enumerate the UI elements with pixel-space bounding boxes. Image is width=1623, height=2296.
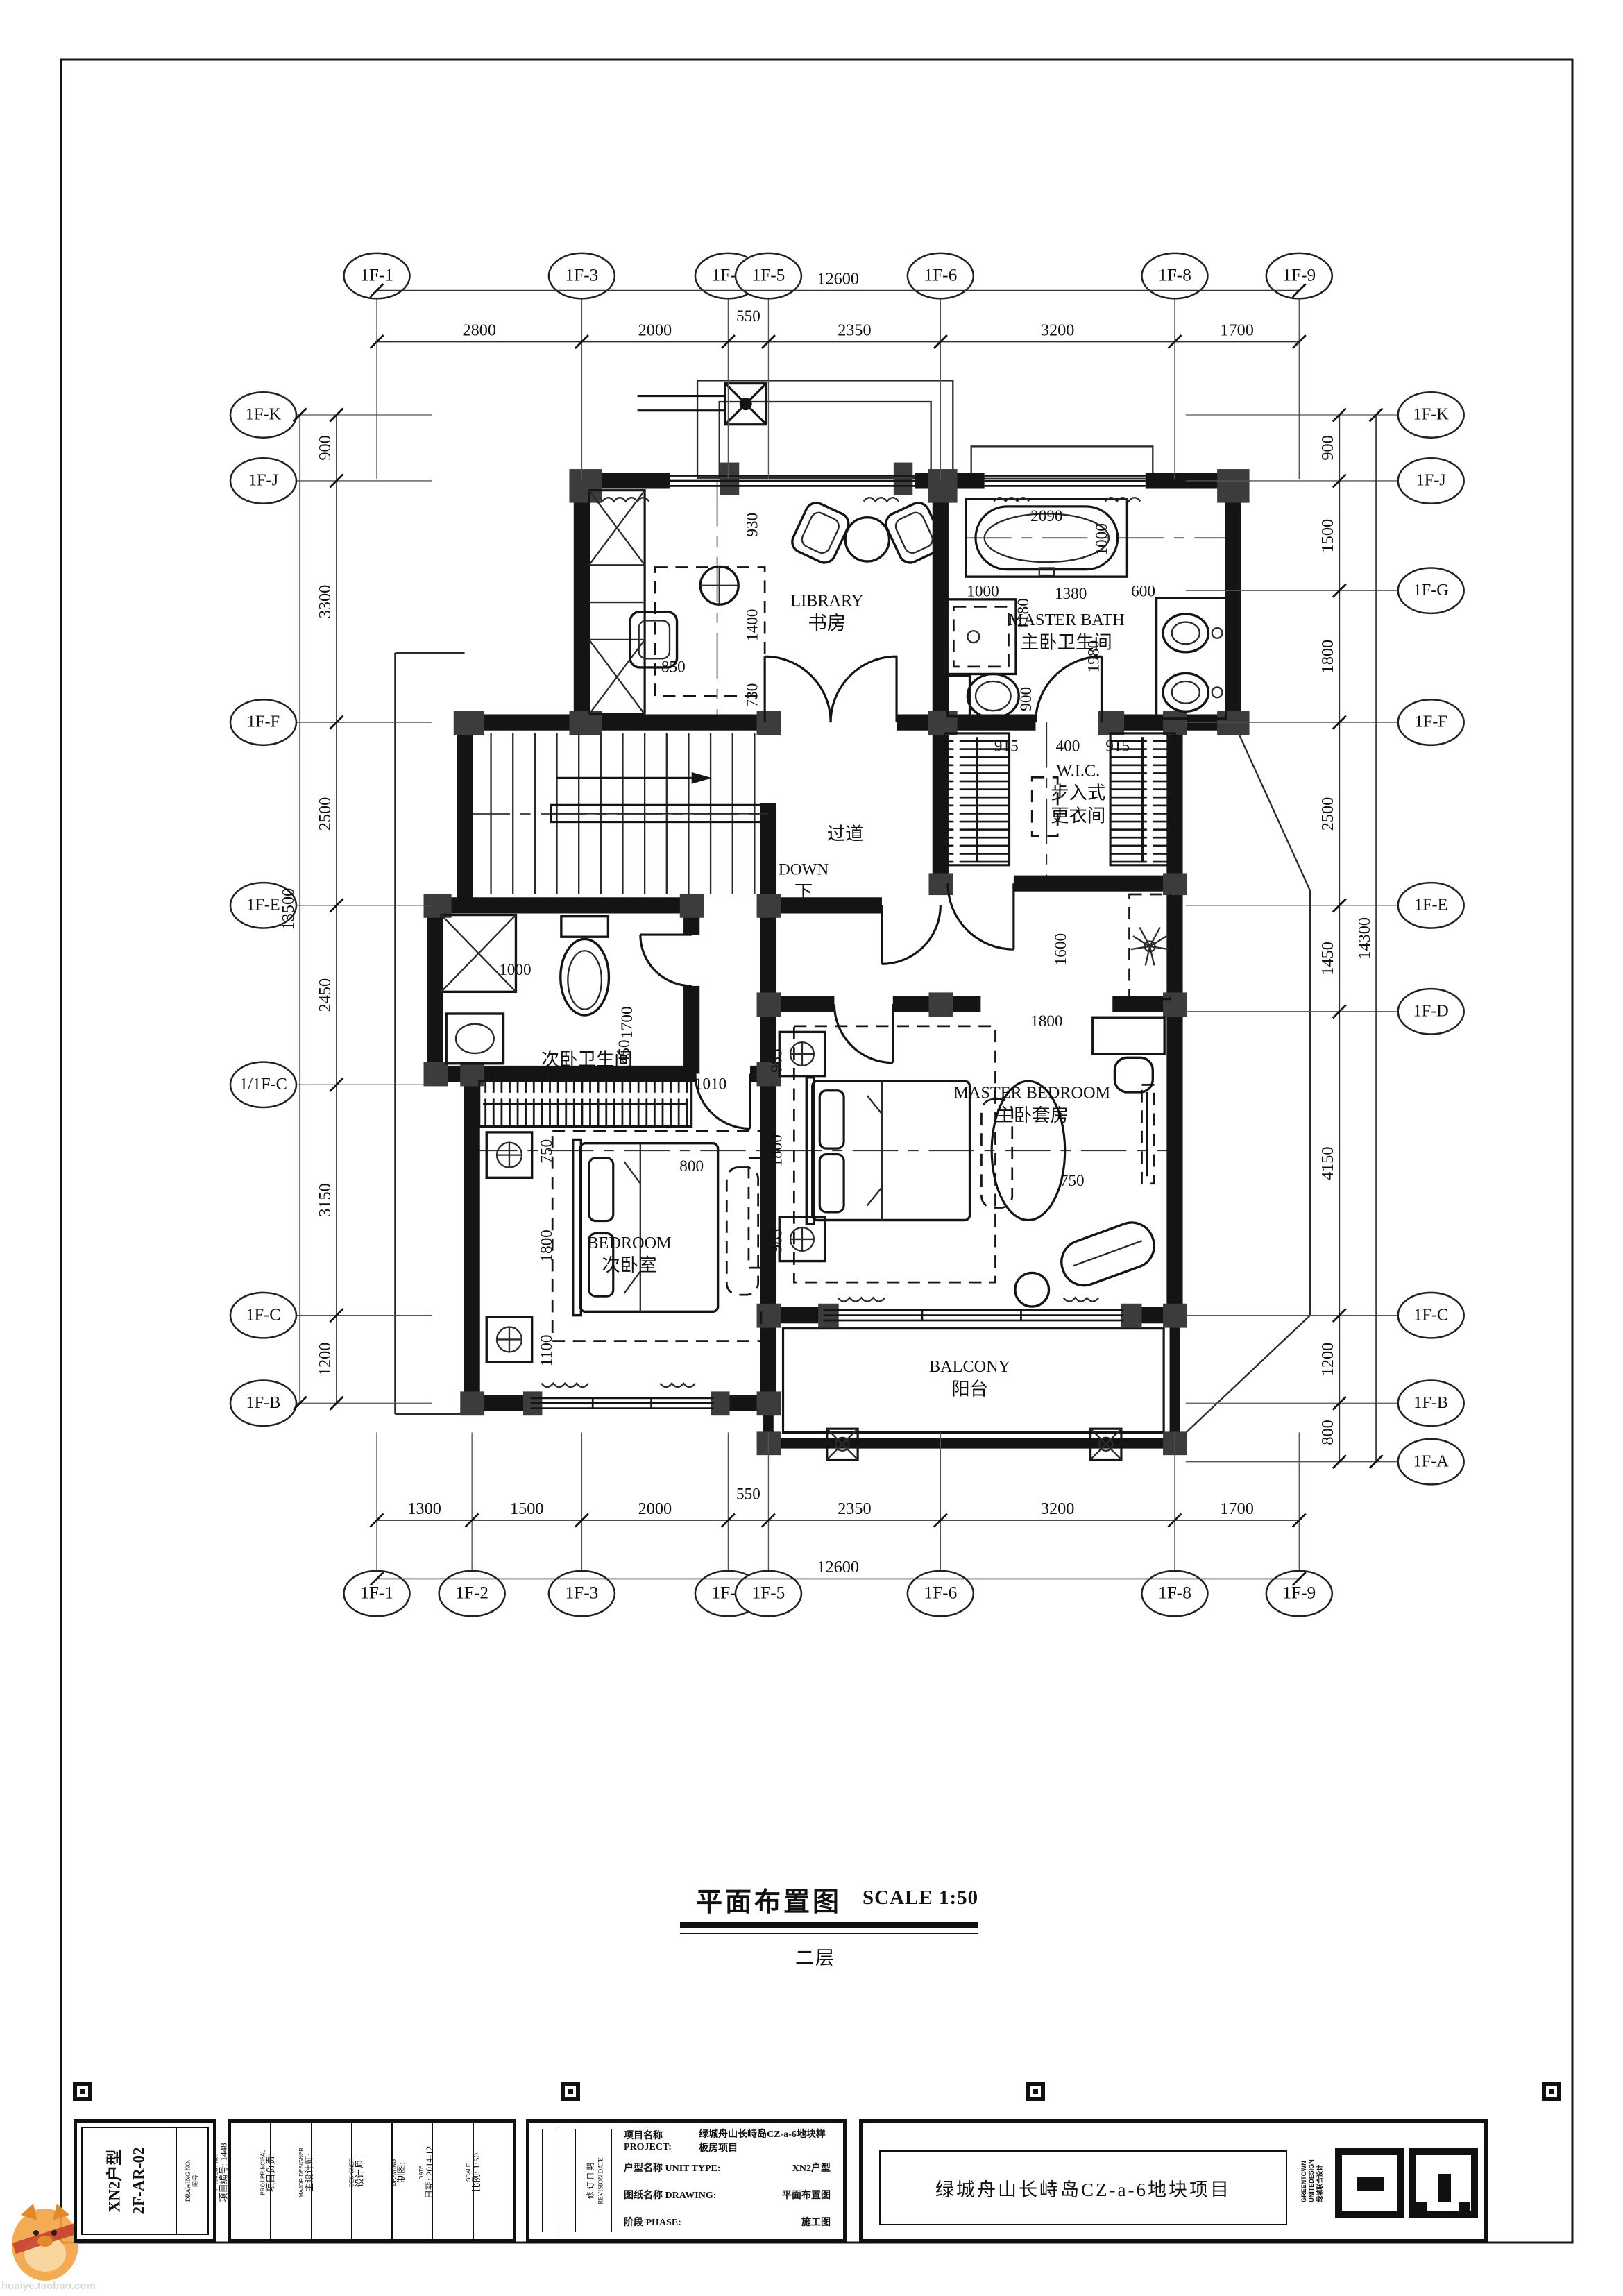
drawing-number: 2F-AR-02: [130, 2147, 147, 2214]
dimension-text: 12600: [817, 269, 859, 288]
grid-label: 1/1F-C: [239, 1075, 287, 1094]
annotations: 1F-11F-31F-41F-51F-61F-81F-91F-11F-21F-3…: [230, 253, 1464, 1616]
grid-label: 1F-K: [1413, 405, 1450, 424]
dimension-text: 1450: [1318, 942, 1337, 976]
plan-text: 1700: [618, 1006, 636, 1038]
dimension-text: 4150: [1318, 1146, 1337, 1180]
plan-text: 1000: [1093, 523, 1111, 555]
plan-text: 1800: [767, 1134, 785, 1166]
bedroom-furniture: [479, 1081, 762, 1362]
plan-text: 985: [767, 1229, 785, 1253]
grid-label: 1F-K: [246, 405, 282, 424]
titleblock-row: 户型名称 UNIT TYPE:XN2户型: [617, 2154, 838, 2182]
titleblock-rows: 项目名称 PROJECT:绿城舟山长峙岛CZ-a-6地块样板房项目户型名称 UN…: [617, 2127, 838, 2235]
project-name: 绿城舟山长峙岛CZ-a-6地块项目: [879, 2150, 1287, 2225]
plan-text: 750: [538, 1139, 556, 1164]
plan-text: 阳台: [951, 1379, 988, 1399]
library-furniture: [589, 491, 946, 715]
secondary-bath-fixtures: [441, 915, 609, 1064]
grid-label: 1F-8: [1158, 265, 1191, 284]
grid-label: 1F-1: [360, 1583, 393, 1602]
grid-label: 1F-B: [246, 1393, 281, 1412]
dimension-text: 1300: [407, 1499, 441, 1518]
grid-label: 1F-F: [1415, 713, 1447, 731]
grid-label: 1F-G: [1413, 581, 1449, 599]
dimension-text: 3200: [1041, 1499, 1075, 1518]
grid-label: 1F-A: [1413, 1452, 1450, 1470]
plan-text: 550: [736, 1486, 760, 1504]
plan-text: 550: [736, 307, 760, 325]
company-logo-icon: [1334, 2148, 1480, 2220]
plan-text: 730: [744, 683, 762, 708]
plan-text: 600: [1131, 583, 1155, 601]
unit-type-code: XN2户型: [106, 2150, 124, 2213]
dimension-text: 1500: [510, 1499, 544, 1518]
grid-label: 1F-3: [565, 1583, 598, 1602]
grid-label: 1F-3: [565, 265, 598, 284]
plan-text: DOWN: [779, 861, 829, 879]
dimension-text: 2500: [1318, 797, 1337, 831]
dimension-text: 14300: [1355, 917, 1374, 960]
dimension-text: 900: [1318, 435, 1337, 460]
dimension-text: 1700: [1220, 321, 1254, 339]
titleblock-row: 图纸名称 DRAWING:平面布置图: [617, 2182, 838, 2209]
titleblock-drawingno-box: DRAWING NO. 图号 XN2户型 2F-AR-02: [74, 2119, 216, 2243]
watermark-mascot: [12, 2204, 78, 2281]
titleblock-row: 阶段 PHASE:施工图: [617, 2208, 838, 2235]
dimension-text: 12600: [817, 1558, 859, 1576]
plan-text: 750: [1060, 1172, 1085, 1190]
plan-text: W.I.C.: [1056, 761, 1100, 780]
plan-text: 1000: [967, 583, 999, 601]
grid-label: 1F-8: [1158, 1583, 1191, 1602]
registration-marks: [73, 2082, 1561, 2101]
watermark-text: huaiye.taobao.com: [1, 2280, 96, 2292]
plan-text: 2090: [1030, 507, 1062, 525]
staircase: [491, 733, 769, 894]
brand-text: GREENTOWNUNITEDESIGN绿城联合设计: [1300, 2159, 1324, 2202]
plant-icon: [1131, 928, 1169, 966]
bath-bay-outline: [971, 446, 1153, 478]
plan-text: 1180: [1014, 598, 1033, 630]
dimension-text: 1800: [1318, 640, 1337, 674]
dimension-text: 2350: [838, 321, 872, 339]
plan-text: BALCONY: [929, 1357, 1010, 1376]
plan-text: 400: [1056, 737, 1080, 755]
grid-label: 1F-2: [455, 1583, 488, 1602]
revision-label-cn: 修 订 日 期: [587, 2163, 595, 2199]
plan-text: 915: [994, 737, 1019, 755]
stair-direction-arrow: [692, 772, 713, 784]
revision-area: 修 订 日 期 REVISION DATE: [529, 2129, 612, 2232]
floor-plan: 1F-11F-31F-41F-51F-61F-81F-91F-11F-21F-3…: [230, 253, 1464, 1616]
grid-label: 1F-C: [246, 1305, 281, 1324]
dimension-text: 3150: [316, 1183, 334, 1217]
revision-label-en: REVISION DATE: [597, 2157, 604, 2204]
grid-label: 1F-5: [752, 265, 785, 284]
titleblock-info-box: 修 订 日 期 REVISION DATE 项目名称 PROJECT:绿城舟山长…: [526, 2119, 847, 2243]
grid-label: 1F-C: [1413, 1305, 1448, 1324]
plan-text: 1400: [744, 609, 762, 641]
plan-text: 1600: [1052, 933, 1070, 965]
dimension-text: 2500: [316, 797, 334, 831]
plan-text: 更衣间: [1051, 806, 1105, 826]
plan-text: 930: [744, 513, 762, 537]
plan-text: 过道: [827, 824, 864, 844]
plan-text: BEDROOM: [587, 1234, 671, 1252]
plan-text: 次卧室: [602, 1255, 656, 1275]
plan-text: 450: [615, 1039, 634, 1064]
dimension-text: 1200: [316, 1343, 334, 1377]
dimension-text: 1700: [1220, 1499, 1254, 1518]
drawingno-label-en: DRAWING NO.: [185, 2160, 192, 2202]
title-underline-2: [680, 1933, 978, 1934]
plan-text: 步入式: [1051, 783, 1105, 803]
plan-text: 915: [1105, 737, 1130, 755]
dimension-text: 900: [316, 435, 334, 460]
grid-label: 1F-D: [1413, 1001, 1449, 1020]
dimension-text: 2000: [638, 1499, 672, 1518]
title-underline: [680, 1922, 978, 1928]
grid-label: 1F-6: [924, 1583, 957, 1602]
drawing-sheet: 1F-11F-31F-41F-51F-61F-81F-91F-11F-21F-3…: [0, 0, 1623, 2296]
grid-label: 1F-9: [1282, 265, 1316, 284]
grid-label: 1F-6: [924, 265, 957, 284]
plan-text: 1000: [499, 961, 531, 979]
titleblock-columns: PROJECT No.项目编号: 1448PROJ PRINCIPAL项目负责:…: [228, 2119, 516, 2243]
plan-text: MASTER BEDROOM: [953, 1084, 1110, 1103]
plan-text: 1380: [1055, 585, 1087, 603]
titleblock-column: SCALE比例: 1:50: [473, 2123, 513, 2239]
grid-label: 1F-1: [360, 265, 393, 284]
grid-label: 1F-J: [1416, 471, 1446, 490]
dimension-text: 3300: [316, 585, 334, 619]
drawingno-label-cn: 图号: [192, 2175, 199, 2187]
master-bath-fixtures: [946, 499, 1226, 719]
plan-text: 900: [1017, 687, 1035, 711]
dimension-text: 1200: [1318, 1343, 1337, 1377]
grid-label: 1F-E: [1414, 895, 1448, 914]
dimension-text: 2800: [462, 321, 496, 339]
titleblock-row: 项目名称 PROJECT:绿城舟山长峙岛CZ-a-6地块样板房项目: [617, 2127, 838, 2154]
plan-text: 书房: [808, 613, 846, 633]
drawing-title: 平面布置图: [696, 1880, 842, 1919]
plan-text: 1980: [1085, 640, 1103, 672]
floor-label: 二层: [795, 1943, 835, 1970]
grid-label: 1F-E: [246, 895, 280, 914]
grid-label: 1F-F: [247, 713, 280, 731]
drawing-scale: SCALE 1:50: [863, 1887, 978, 1910]
dimension-text: 2000: [638, 321, 672, 339]
dimension-text: 3200: [1041, 321, 1075, 339]
plan-text: 主卧套房: [996, 1105, 1069, 1125]
plan-text: LIBRARY: [790, 592, 863, 611]
titleblock-column: DESIGNER设计师:: [351, 2123, 391, 2239]
titleblock-column: MAJOR DESIGNER主设计师:: [311, 2123, 351, 2239]
dimension-text: 800: [1318, 1420, 1337, 1445]
plan-text: 1100: [538, 1335, 556, 1367]
dimension-text: 2350: [838, 1499, 872, 1518]
structural-columns: [424, 463, 1250, 1456]
column-symbol: [638, 384, 767, 425]
dimension-text: 1500: [1318, 519, 1337, 553]
grid-label: 1F-5: [752, 1583, 785, 1602]
plan-text: 1010: [695, 1075, 726, 1094]
plan-text: 800: [679, 1157, 704, 1175]
plan-text: 985: [767, 1048, 785, 1073]
grid-label: 1F-J: [248, 471, 278, 490]
plan-text: 1800: [1030, 1012, 1062, 1030]
plan-text: 下: [794, 882, 813, 902]
dimension-text: 13500: [279, 888, 298, 930]
titleblock-project-box: 绿城舟山长峙岛CZ-a-6地块项目 GREENTOWNUNITEDESIGN绿城…: [859, 2119, 1488, 2243]
plan-text: 1800: [538, 1230, 556, 1261]
grid-label: 1F-9: [1282, 1583, 1316, 1602]
grid-label: 1F-B: [1413, 1393, 1448, 1412]
plan-text: 850: [661, 658, 686, 676]
dimension-text: 2450: [316, 978, 334, 1012]
